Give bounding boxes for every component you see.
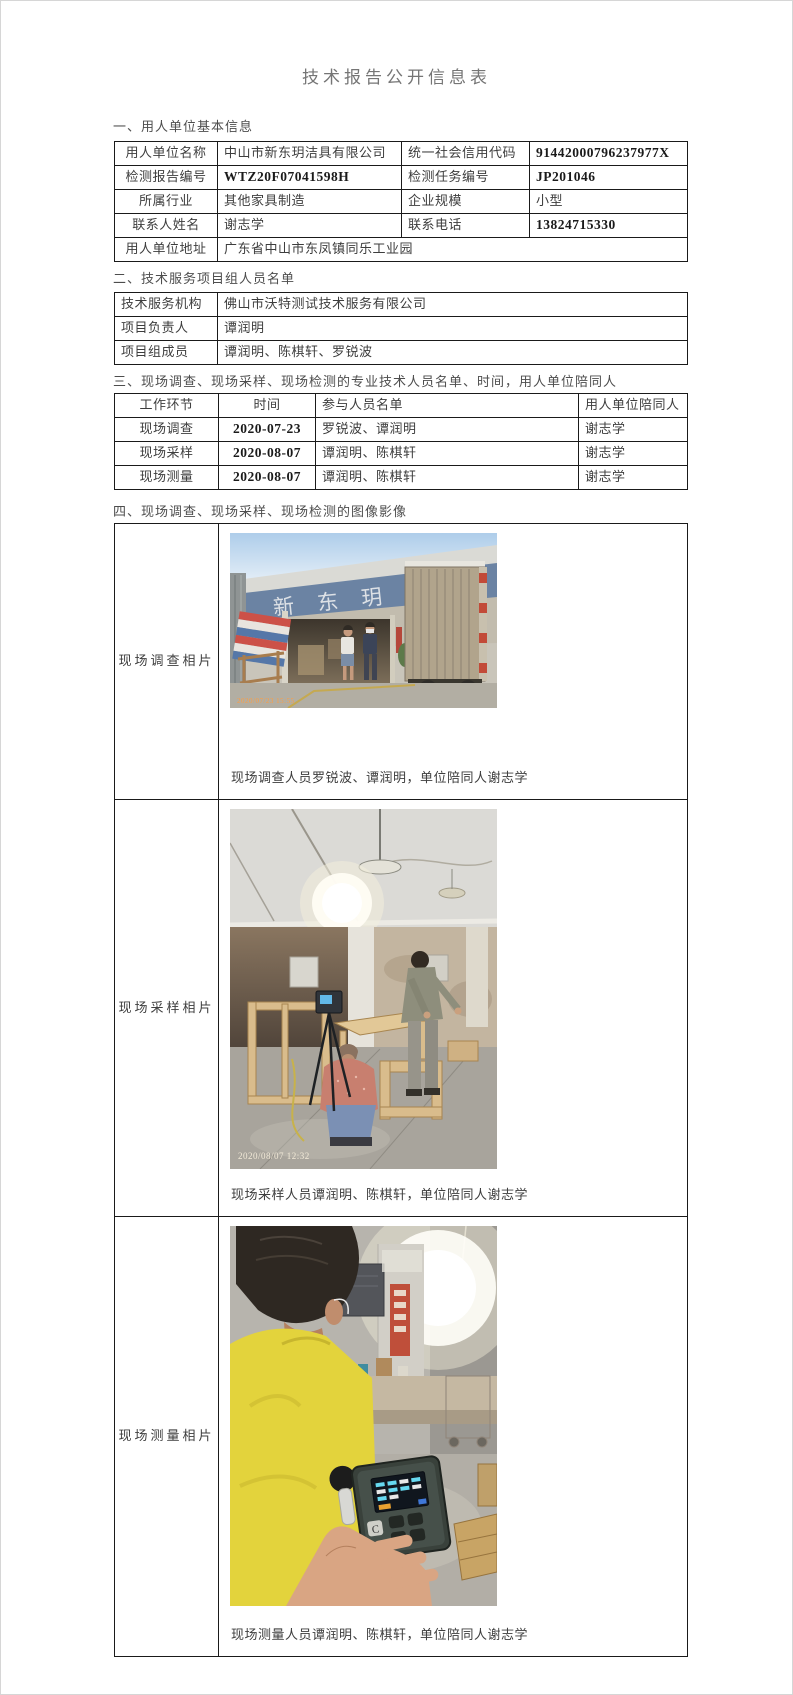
survey-photo-label: 现场调查相片 [115,524,219,800]
members-label: 项目组成员 [115,341,218,365]
measurement-photo-image: C [230,1226,497,1606]
task-no-value: JP201046 [530,166,688,190]
report-no-label: 检测报告编号 [115,166,218,190]
address-value: 广东省中山市东凤镇同乐工业园 [218,238,688,262]
photo-timestamp: 2020/08/07 12:32 [238,1151,310,1161]
sampling-photo-image: 2020/08/07 12:32 [230,809,497,1169]
industry-label: 所属行业 [115,190,218,214]
section2-heading: 二、技术服务项目组人员名单 [113,268,295,287]
staff-cell: 谭润明、陈棋轩 [316,466,579,490]
measurement-photo-caption: 现场测量人员谭润明、陈棋轩，单位陪同人谢志学 [231,1627,528,1643]
sampling-photo-cell: 2020/08/07 12:32 现场采样人员谭润明、陈棋轩，单位陪同人谢志学 [219,800,688,1217]
col-header-date: 时间 [219,394,316,418]
photo-row-survey: 现场调查相片 新 东 玥 洁 [115,524,688,800]
members-value: 谭润明、陈棋轩、罗锐波 [218,341,688,365]
table-row: 用人单位名称 中山市新东玥洁具有限公司 统一社会信用代码 91442000796… [115,142,688,166]
measurement-photo-cell: C 现场测量人员谭润明、陈棋轩，单位陪同人谢志学 [219,1217,688,1657]
employer-info-table: 用人单位名称 中山市新东玥洁具有限公司 统一社会信用代码 91442000796… [114,141,688,262]
sampling-photo-caption: 现场采样人员谭润明、陈棋轩，单位陪同人谢志学 [231,1187,528,1203]
leader-value: 谭润明 [218,317,688,341]
step-cell: 现场测量 [115,466,219,490]
col-header-staff: 参与人员名单 [316,394,579,418]
date-cell: 2020-08-07 [219,442,316,466]
table-row: 检测报告编号 WTZ20F07041598H 检测任务编号 JP201046 [115,166,688,190]
contact-name-label: 联系人姓名 [115,214,218,238]
box-truck [405,561,487,698]
report-disclosure-document: 技术报告公开信息表 一、用人单位基本信息 用人单位名称 中山市新东玥洁具有限公司… [0,0,793,1695]
escort-cell: 谢志学 [579,418,688,442]
section4-heading: 四、现场调查、现场采样、现场检测的图像影像 [113,501,407,520]
date-cell: 2020-07-23 [219,418,316,442]
fieldwork-schedule-table: 工作环节 时间 参与人员名单 用人单位陪同人 现场调查 2020-07-23 罗… [114,393,688,490]
industry-value: 其他家具制造 [218,190,402,214]
meter-c-button: C [371,1523,380,1536]
step-cell: 现场调查 [115,418,219,442]
leader-label: 项目负责人 [115,317,218,341]
sampling-photo-label: 现场采样相片 [115,800,219,1217]
photo-evidence-table: 现场调查相片 新 东 玥 洁 [114,523,688,1657]
page-title: 技术报告公开信息表 [1,63,792,88]
project-team-table: 技术服务机构 佛山市沃特测试技术服务有限公司 项目负责人 谭润明 项目组成员 谭… [114,292,688,365]
phone-label: 联系电话 [402,214,530,238]
photo-row-sampling: 现场采样相片 [115,800,688,1217]
table-row: 联系人姓名 谢志学 联系电话 13824715330 [115,214,688,238]
credit-code-value: 91442000796237977X [530,142,688,166]
wooden-box [454,1514,497,1580]
survey-photo-image: 新 东 玥 洁 具 [230,533,497,708]
table-header-row: 工作环节 时间 参与人员名单 用人单位陪同人 [115,394,688,418]
section1-heading: 一、用人单位基本信息 [113,116,253,135]
survey-photo-caption: 现场调查人员罗锐波、谭润明，单位陪同人谢志学 [231,770,528,786]
step-cell: 现场采样 [115,442,219,466]
staff-cell: 罗锐波、谭润明 [316,418,579,442]
table-row: 现场测量 2020-08-07 谭润明、陈棋轩 谢志学 [115,466,688,490]
col-header-escort: 用人单位陪同人 [579,394,688,418]
table-row: 用人单位地址 广东省中山市东凤镇同乐工业园 [115,238,688,262]
employer-name-value: 中山市新东玥洁具有限公司 [218,142,402,166]
escort-cell: 谢志学 [579,466,688,490]
table-row: 现场调查 2020-07-23 罗锐波、谭润明 谢志学 [115,418,688,442]
agency-value: 佛山市沃特测试技术服务有限公司 [218,293,688,317]
table-row: 项目组成员 谭润明、陈棋轩、罗锐波 [115,341,688,365]
table-row: 所属行业 其他家具制造 企业规模 小型 [115,190,688,214]
task-no-label: 检测任务编号 [402,166,530,190]
section3-heading: 三、现场调查、现场采样、现场检测的专业技术人员名单、时间，用人单位陪同人 [113,371,617,390]
survey-photo-cell: 新 东 玥 洁 具 [219,524,688,800]
employer-name-label: 用人单位名称 [115,142,218,166]
phone-value: 13824715330 [530,214,688,238]
photo-timestamp: 2020/07/23 15:55 [237,697,295,705]
scale-label: 企业规模 [402,190,530,214]
contact-name-value: 谢志学 [218,214,402,238]
scale-value: 小型 [530,190,688,214]
table-row: 技术服务机构 佛山市沃特测试技术服务有限公司 [115,293,688,317]
measurement-photo-label: 现场测量相片 [115,1217,219,1657]
credit-code-label: 统一社会信用代码 [402,142,530,166]
table-row: 项目负责人 谭润明 [115,317,688,341]
col-header-step: 工作环节 [115,394,219,418]
escort-cell: 谢志学 [579,442,688,466]
table-row: 现场采样 2020-08-07 谭润明、陈棋轩 谢志学 [115,442,688,466]
date-cell: 2020-08-07 [219,466,316,490]
photo-row-measurement: 现场测量相片 [115,1217,688,1657]
agency-label: 技术服务机构 [115,293,218,317]
address-label: 用人单位地址 [115,238,218,262]
staff-cell: 谭润明、陈棋轩 [316,442,579,466]
report-no-value: WTZ20F07041598H [218,166,402,190]
